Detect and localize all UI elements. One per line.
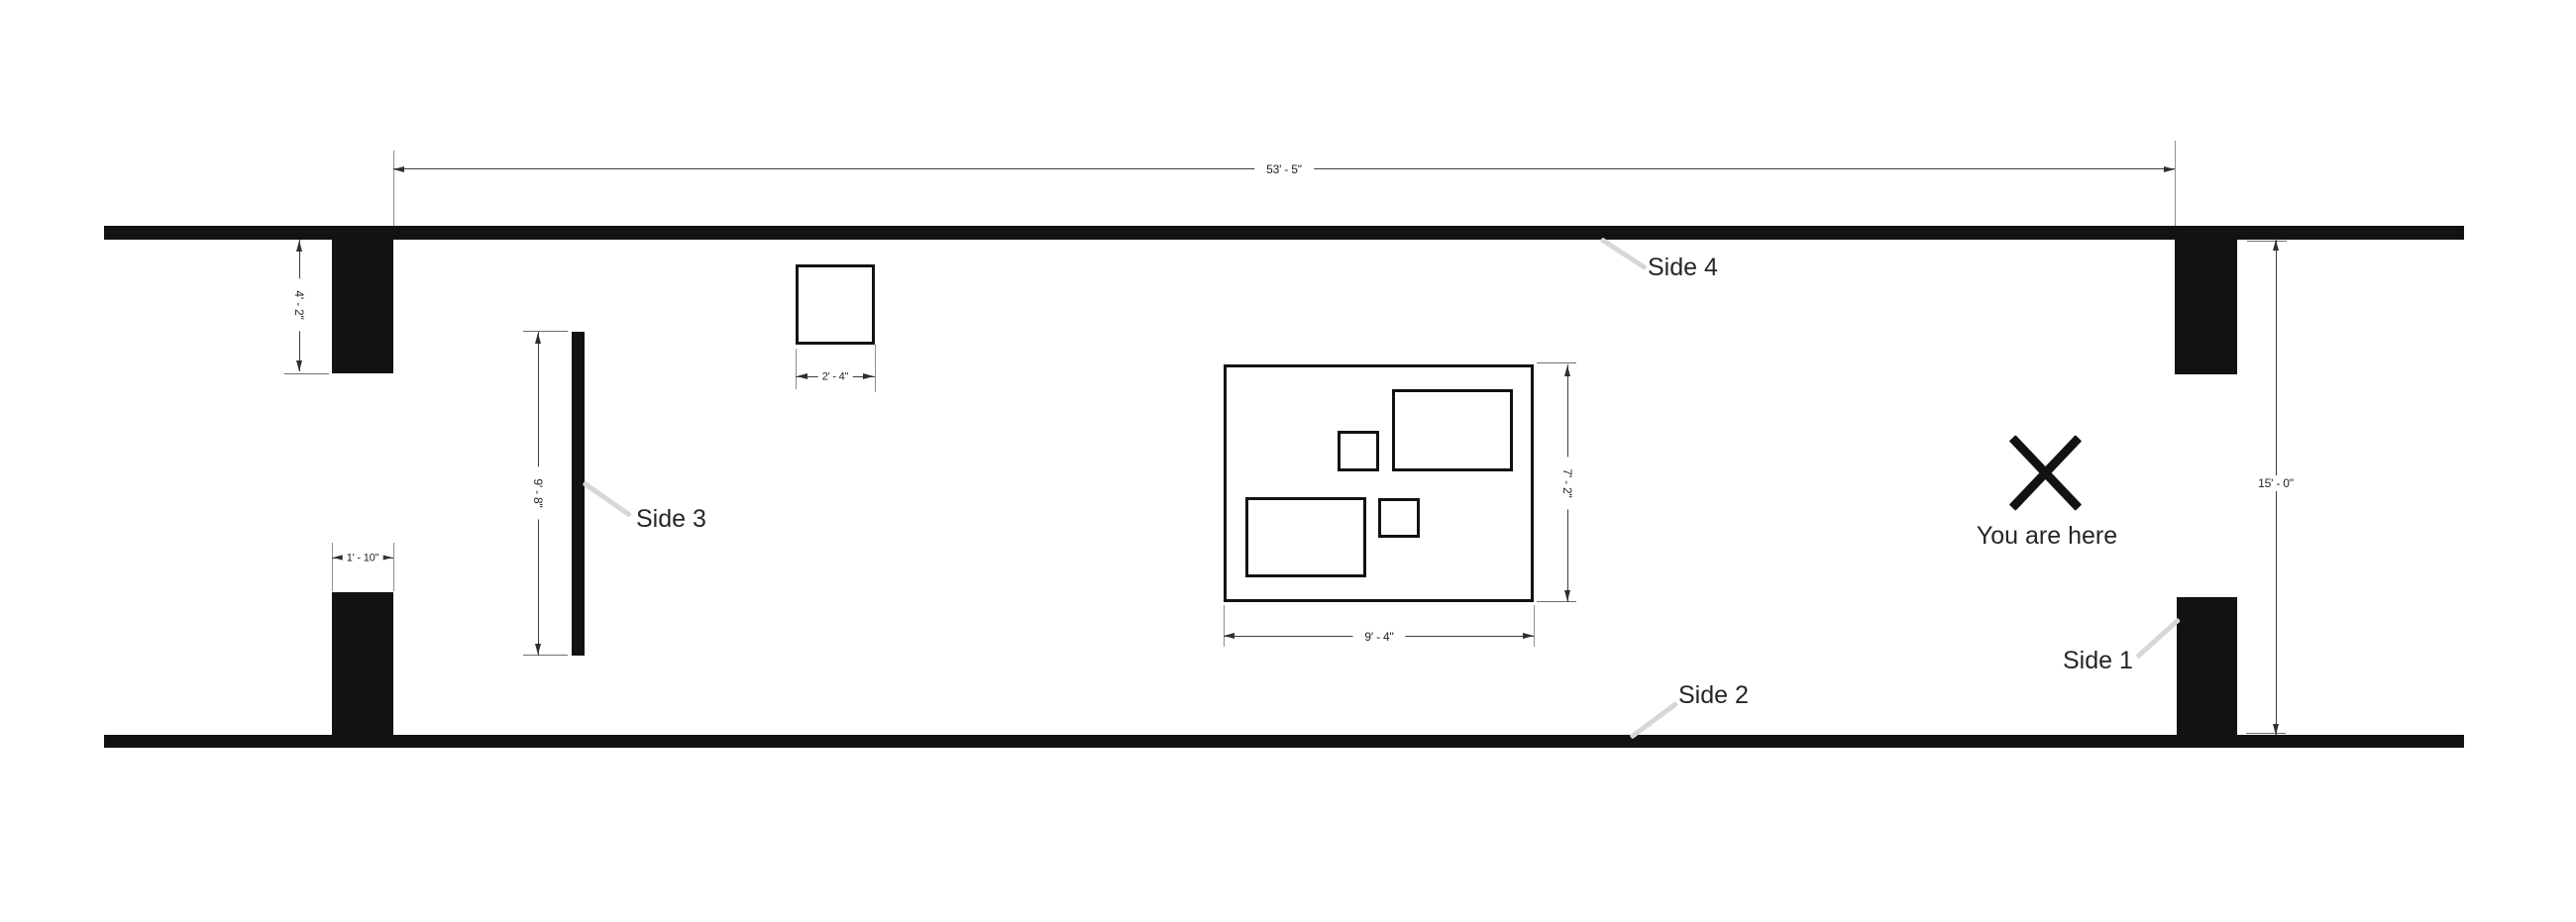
- display-stand-upper: [1338, 431, 1379, 471]
- arrowhead: [2273, 724, 2279, 735]
- floor-plan-canvas: You are here Side 4 Side 3 Side 2 Side 1…: [0, 0, 2576, 922]
- wall-side3: [572, 332, 585, 656]
- arrowhead: [296, 360, 302, 371]
- extension-tick: [523, 331, 568, 332]
- extension-tick: [284, 373, 329, 374]
- extension-tick: [1537, 601, 1576, 602]
- leader-line-side1: [2135, 618, 2181, 660]
- square-fixture: [796, 264, 875, 345]
- display-table-bottom-left: [1245, 497, 1366, 577]
- arrowhead: [381, 555, 392, 561]
- extension-tick: [523, 655, 568, 656]
- wall-bottom-side2: [104, 735, 2464, 748]
- arrowhead: [1523, 633, 1534, 639]
- extension-tick: [1537, 362, 1576, 363]
- wall-top-side4: [104, 226, 2464, 240]
- label-side1: Side 1: [2063, 648, 2133, 675]
- dimension-text-pillar-height: 4' - 2": [291, 278, 307, 331]
- extension-line: [875, 345, 876, 392]
- arrowhead: [797, 373, 807, 379]
- arrowhead: [2164, 166, 2175, 172]
- display-stand-lower: [1378, 498, 1420, 538]
- pillar-bottom-left: [332, 592, 393, 735]
- you-are-here-label: You are here: [1977, 523, 2117, 551]
- dimension-text-display-height: 7' - 2": [1559, 457, 1575, 509]
- arrowhead: [296, 241, 302, 252]
- leader-line-side3: [583, 480, 632, 517]
- extension-line: [796, 349, 797, 389]
- extension-line: [393, 151, 394, 226]
- dimension-text-room-width: 53' - 5": [1254, 161, 1314, 177]
- arrowhead: [393, 166, 404, 172]
- extension-tick: [2247, 241, 2287, 242]
- arrowhead: [1564, 365, 1570, 376]
- label-side3: Side 3: [636, 506, 706, 534]
- dimension-text-pillar-width: 1' - 10": [343, 553, 383, 565]
- pillar-bottom-right: [2177, 597, 2237, 735]
- dimension-text-room-height: 15' - 0": [2246, 475, 2306, 491]
- label-side4: Side 4: [1648, 255, 1718, 282]
- extension-tick: [2246, 733, 2286, 734]
- dimension-text-square-width: 2' - 4": [818, 371, 853, 384]
- arrowhead: [535, 644, 541, 655]
- display-table-top-right: [1392, 389, 1513, 471]
- dimension-text-display-width: 9' - 4": [1352, 629, 1405, 645]
- pillar-top-left: [332, 240, 393, 373]
- arrowhead: [2273, 240, 2279, 251]
- arrowhead: [535, 333, 541, 344]
- leader-line-side4: [1600, 237, 1648, 270]
- display-area-outline: [1224, 364, 1534, 602]
- leader-line-side2: [1630, 701, 1679, 740]
- extension-line: [1224, 605, 1225, 647]
- extension-line: [393, 543, 394, 591]
- extension-line: [2175, 141, 2176, 226]
- arrowhead: [1224, 633, 1234, 639]
- arrowhead: [863, 373, 874, 379]
- extension-line: [332, 543, 333, 591]
- dimension-text-side3-length: 9' - 8": [530, 466, 546, 519]
- extension-line: [1534, 605, 1535, 647]
- label-side2: Side 2: [1678, 682, 1749, 710]
- arrowhead: [1564, 590, 1570, 601]
- pillar-top-right: [2175, 240, 2237, 374]
